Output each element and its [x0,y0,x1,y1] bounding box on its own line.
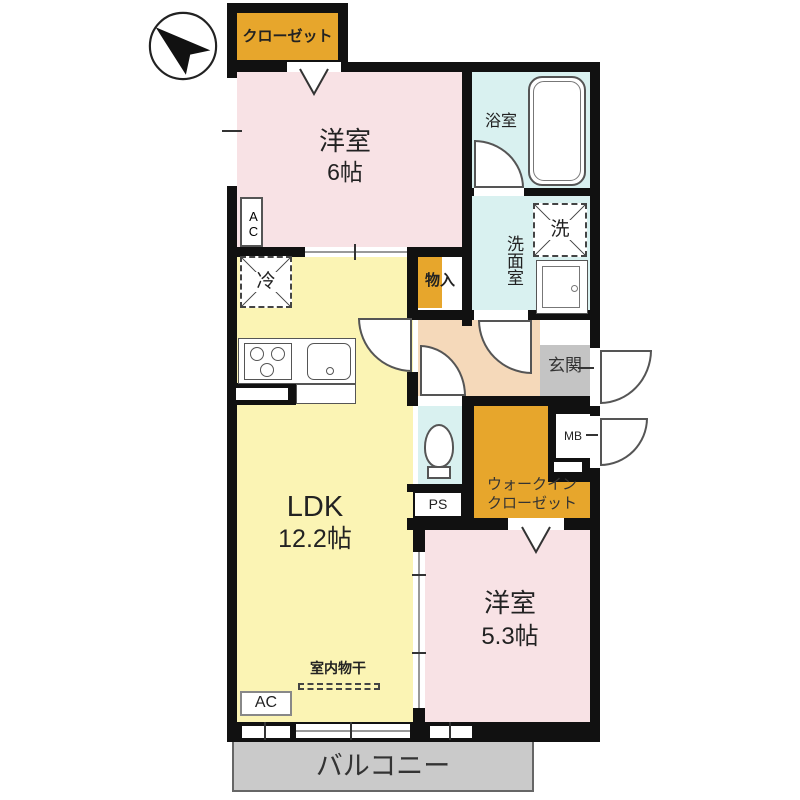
kitchen-cabinet [296,384,356,404]
sliding-door-line [296,730,410,732]
ac-upper-box: AC [240,197,263,247]
sliding-door-tick [354,244,356,260]
ldk-size: 12.2帖 [250,526,380,552]
toilet-bowl [424,424,454,468]
wall [413,530,425,552]
folding-door-icon [298,68,330,96]
front-doorway [590,348,600,406]
burner [271,347,285,361]
stove [244,343,292,380]
ac-lower-label: AC [255,695,277,712]
washing-machine-box: 洗 [533,203,587,257]
wall [227,62,600,72]
bath-label: 浴室 [474,114,528,131]
bathtub-inner [533,81,581,181]
bedroom6-label: 洋室 [287,128,403,155]
ps-label: PS [429,497,448,512]
window-marker [430,726,472,738]
wall [407,518,600,530]
floor-plan: バルコニー クローゼット MB [0,0,800,800]
sliding-door-tick [412,574,426,576]
sliding-door-tick [412,652,426,654]
indoor-laundry-label: 室内物干 [288,661,388,676]
sliding-door-line [305,251,407,253]
window-marker [236,388,288,400]
storage-label: 物入 [414,273,466,289]
refrigerator-box: 冷 [240,256,292,308]
wash-basin [536,260,588,314]
bath-doorway [474,188,524,196]
window-tick [264,722,266,740]
window-tick [449,722,451,740]
ac-lower-box: AC [240,691,292,716]
wic-label-line1: ウォークイン [474,477,590,493]
window-marker [554,462,582,472]
washroom-label: 洗面室 [494,210,522,310]
mb-label: MB [564,430,582,443]
washroom-doorway [474,310,528,320]
label-pointer-line [586,434,598,436]
washer-label: 洗 [548,220,571,240]
burner [260,363,274,377]
ac-upper-label: AC [246,209,261,239]
meter-box: MB [556,414,590,458]
bedroom6-size: 6帖 [287,160,403,184]
entrance-step [540,320,590,345]
closet-box: クローゼット [237,13,338,60]
label-pointer-line [578,367,594,369]
balcony-floor: バルコニー [232,740,534,792]
folding-door-icon [520,526,552,554]
bedroom53-size: 5.3帖 [447,624,573,649]
entrance-label: 玄関 [540,357,590,375]
bedroom53-label: 洋室 [450,590,570,617]
burner [250,347,264,361]
wall [462,406,474,518]
toilet-base [427,466,451,479]
closet-label: クローゼット [242,29,332,45]
mb-doorway [590,416,600,468]
toilet-doorway [418,396,462,406]
fridge-label: 冷 [254,272,277,292]
sliding-door-tick [350,722,352,740]
front-door-arc [600,350,652,404]
sink-drain [326,367,334,375]
mb-door-arc [600,418,648,466]
ldk-label: LDK [255,492,375,522]
wic-label-line2: クローゼット [474,496,590,512]
bathtub [528,76,586,186]
window-marker [227,78,237,186]
kitchen-counter [238,338,356,384]
sink [307,343,351,380]
pipe-space-box: PS [413,491,463,518]
balcony-label: バルコニー [234,752,532,780]
laundry-rail-icon [298,683,380,690]
north-arrow-icon [145,10,221,82]
window-marker [242,726,290,738]
window-tick [222,130,242,132]
basin-knob [571,285,578,292]
